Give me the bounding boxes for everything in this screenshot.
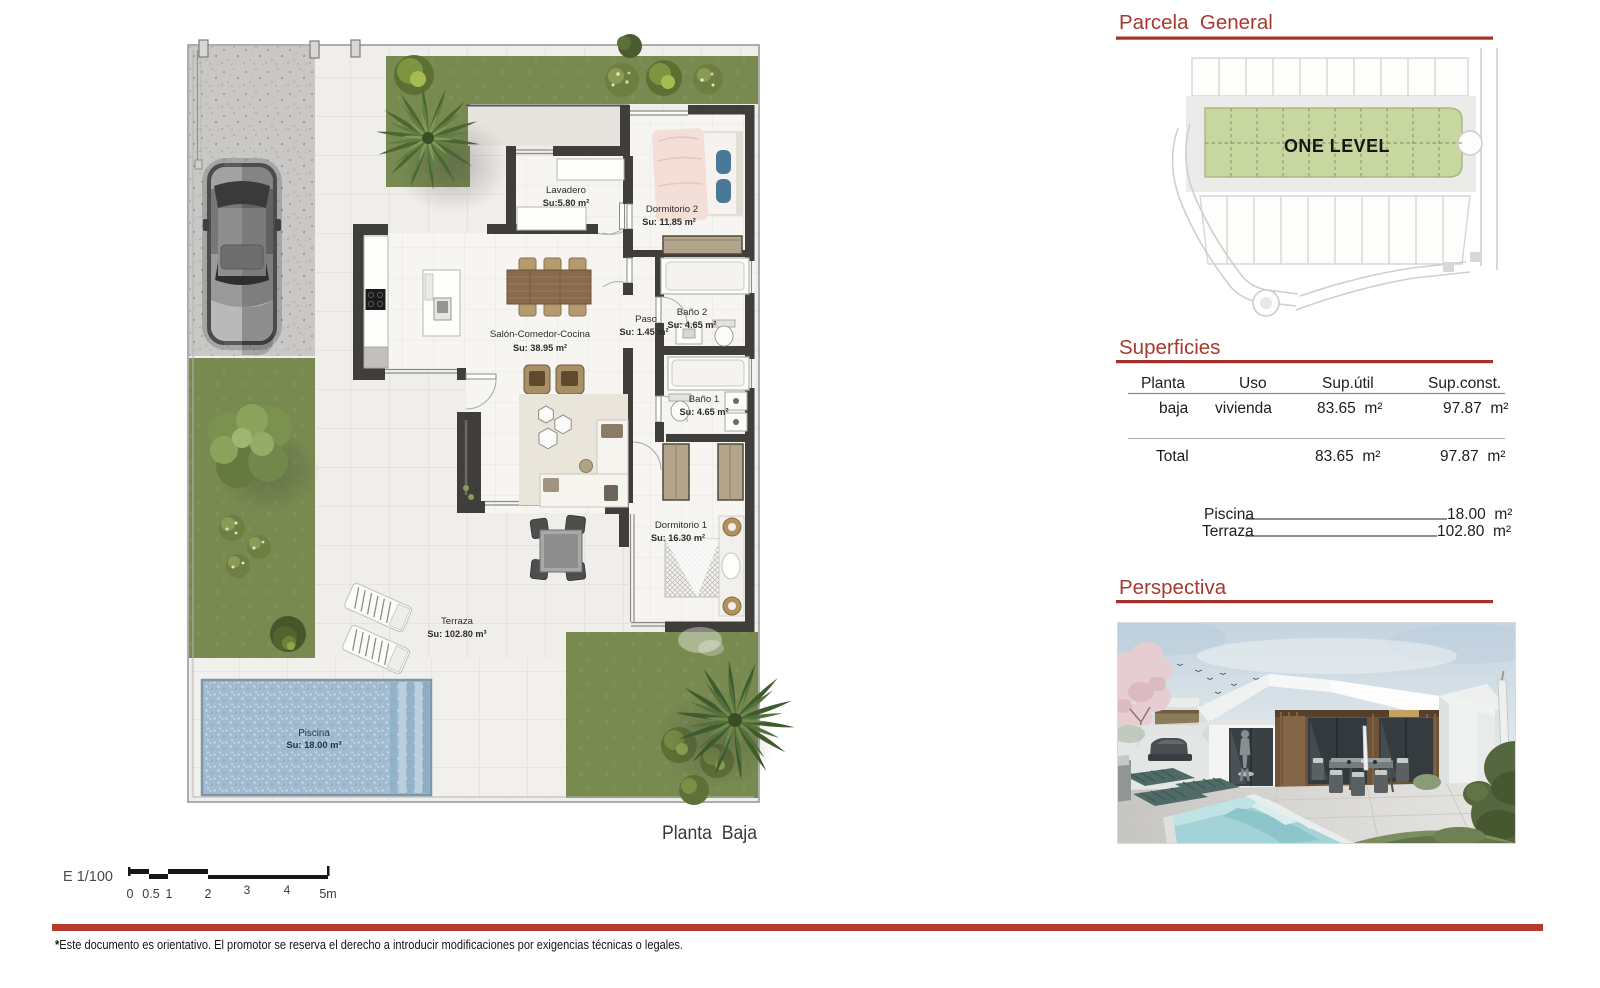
svg-text:Planta: Planta <box>1141 375 1185 392</box>
svg-text:Dormitorio 1: Dormitorio 1 <box>655 520 707 531</box>
svg-text:Dormitorio 2: Dormitorio 2 <box>646 204 698 215</box>
svg-text:Piscina: Piscina <box>298 728 330 739</box>
svg-text:Su: 102.80 m³: Su: 102.80 m³ <box>427 629 486 639</box>
svg-text:Planta Baja: Planta Baja <box>662 822 757 844</box>
svg-text:2: 2 <box>205 887 212 901</box>
svg-text:0: 0 <box>127 887 134 901</box>
svg-text:Su: 16.30 m²: Su: 16.30 m² <box>651 533 705 543</box>
svg-text:Uso: Uso <box>1239 375 1267 392</box>
svg-text:1: 1 <box>166 887 173 901</box>
svg-text:18.00 m²: 18.00 m² <box>1447 506 1512 523</box>
svg-text:Terraza: Terraza <box>441 616 474 627</box>
svg-text:5m: 5m <box>319 887 336 901</box>
svg-text:0.5: 0.5 <box>142 887 159 901</box>
svg-text:83.65 m²: 83.65 m² <box>1315 448 1380 465</box>
svg-text:83.65 m²: 83.65 m² <box>1317 400 1382 417</box>
svg-text:Total: Total <box>1156 448 1189 465</box>
svg-text:Su: 38.95 m²: Su: 38.95 m² <box>513 343 567 353</box>
svg-text:Parcela General: Parcela General <box>1119 11 1273 34</box>
svg-text:Salón-Comedor-Cocina: Salón-Comedor-Cocina <box>490 329 591 340</box>
svg-text:Paso: Paso <box>635 314 657 325</box>
svg-text:baja: baja <box>1159 400 1189 417</box>
svg-text:Su: 4.65 m²: Su: 4.65 m² <box>667 320 716 330</box>
svg-text:97.87 m²: 97.87 m² <box>1440 448 1505 465</box>
svg-text:Su: 11.85 m²: Su: 11.85 m² <box>642 217 696 227</box>
svg-text:97.87 m²: 97.87 m² <box>1443 400 1508 417</box>
svg-text:Superficies: Superficies <box>1119 336 1220 359</box>
svg-text:Sup.útil: Sup.útil <box>1322 375 1374 392</box>
svg-text:Su:5.80 m²: Su:5.80 m² <box>543 198 589 208</box>
svg-text:*Este documento es orientativo: *Este documento es orientativo. El promo… <box>55 937 683 952</box>
svg-text:Terraza: Terraza <box>1202 523 1254 540</box>
svg-text:Baño 1: Baño 1 <box>689 394 719 405</box>
svg-text:102.80 m²: 102.80 m² <box>1437 523 1511 540</box>
svg-text:Piscina: Piscina <box>1204 506 1254 523</box>
svg-text:ONE LEVEL: ONE LEVEL <box>1284 136 1390 156</box>
svg-text:vivienda: vivienda <box>1215 400 1272 417</box>
svg-text:Lavadero: Lavadero <box>546 185 586 196</box>
svg-text:3: 3 <box>244 883 251 897</box>
svg-text:Baño 2: Baño 2 <box>677 307 707 318</box>
svg-text:Su: 4.65 m²: Su: 4.65 m² <box>679 407 728 417</box>
svg-text:Sup.const.: Sup.const. <box>1428 375 1501 392</box>
svg-text:4: 4 <box>284 883 291 897</box>
svg-text:E 1/100: E 1/100 <box>63 869 113 885</box>
svg-text:Su: 18.00 m³: Su: 18.00 m³ <box>286 739 341 750</box>
svg-text:Perspectiva: Perspectiva <box>1119 576 1227 599</box>
svg-text:Su: 1.45 m²: Su: 1.45 m² <box>619 327 668 337</box>
